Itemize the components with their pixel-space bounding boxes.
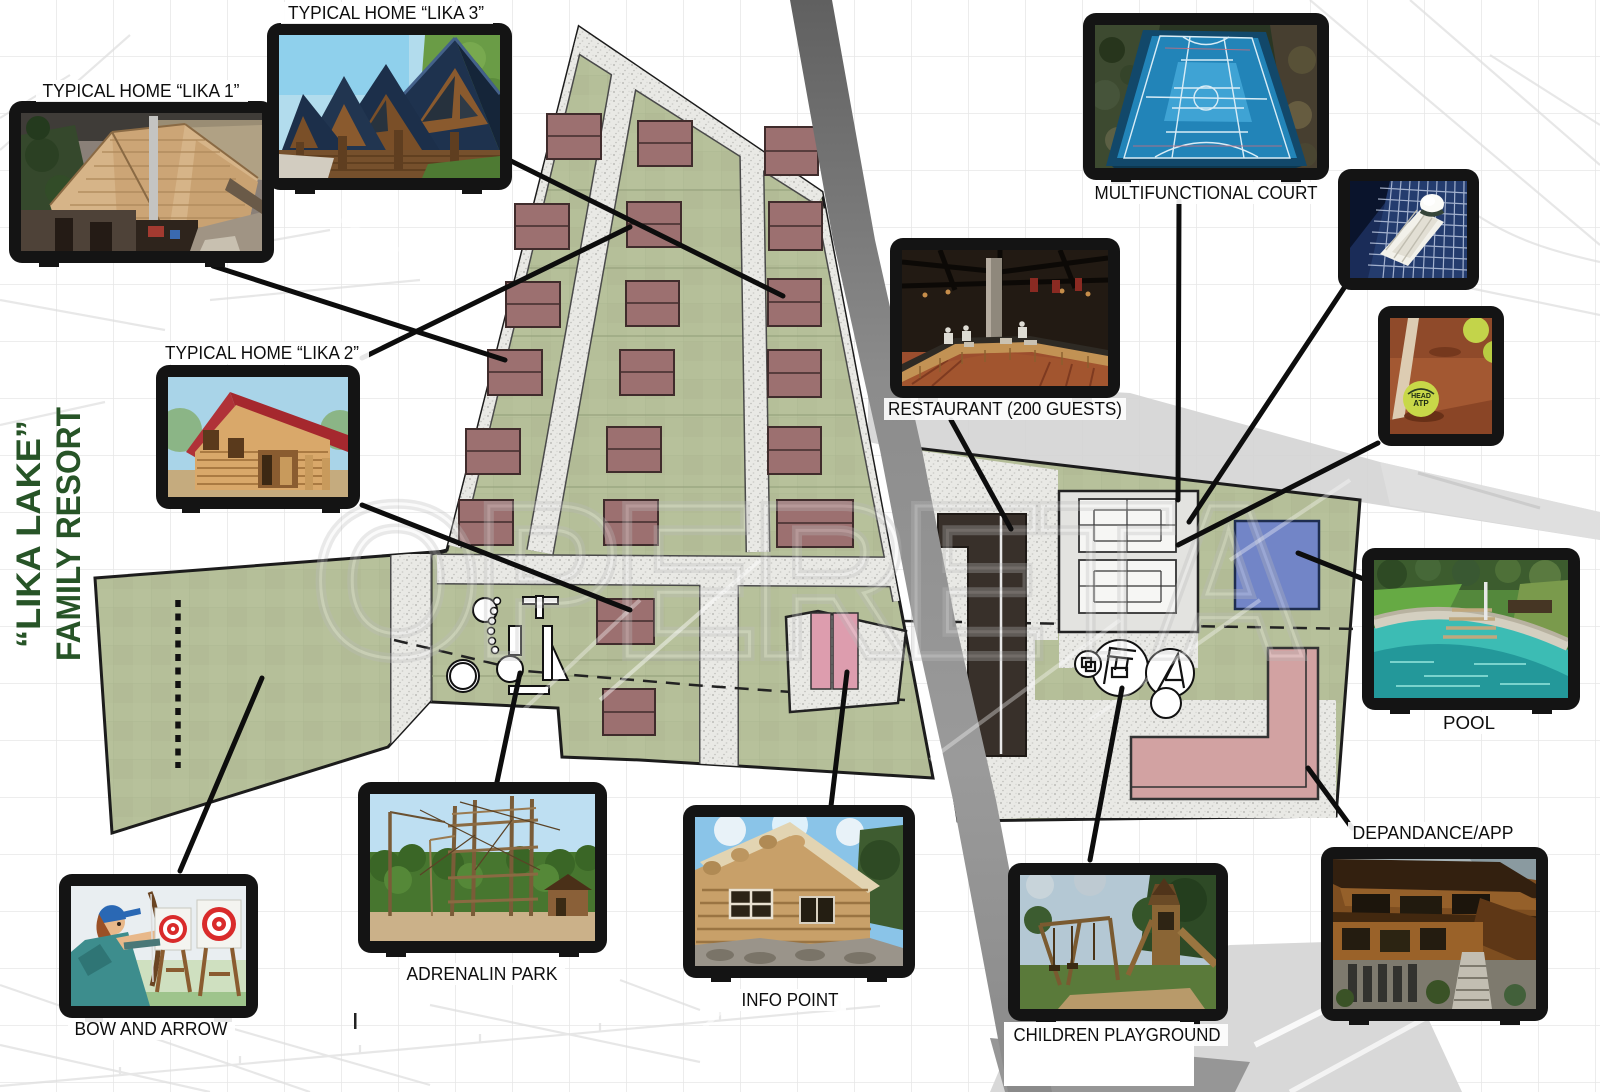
svg-text:ATP: ATP (1413, 399, 1429, 408)
svg-text:ADRENALIN PARK: ADRENALIN PARK (407, 963, 559, 984)
svg-text:DEPANDANCE/APP: DEPANDANCE/APP (1353, 822, 1514, 843)
svg-text:TYPICAL HOME “LIKA 1”: TYPICAL HOME “LIKA 1” (43, 80, 240, 101)
svg-text:FAMILY RESORT: FAMILY RESORT (50, 407, 88, 661)
svg-text:MULTIFUNCTIONAL COURT: MULTIFUNCTIONAL COURT (1095, 182, 1318, 203)
svg-text:TYPICAL HOME “LIKA 3”: TYPICAL HOME “LIKA 3” (288, 2, 484, 23)
svg-text:RESTAURANT (200 GUESTS): RESTAURANT (200 GUESTS) (888, 398, 1122, 419)
svg-text:“LIKA LAKE”: “LIKA LAKE” (10, 420, 48, 648)
svg-text:INFO POINT: INFO POINT (742, 989, 839, 1010)
svg-text:CHILDREN PLAYGROUND: CHILDREN PLAYGROUND (1014, 1024, 1221, 1045)
svg-text:POOL: POOL (1443, 712, 1495, 733)
svg-text:BOW AND ARROW: BOW AND ARROW (75, 1018, 229, 1039)
svg-text:TYPICAL HOME “LIKA 2”: TYPICAL HOME “LIKA 2” (165, 342, 359, 363)
svg-text:OPERETA: OPERETA (312, 460, 1302, 703)
